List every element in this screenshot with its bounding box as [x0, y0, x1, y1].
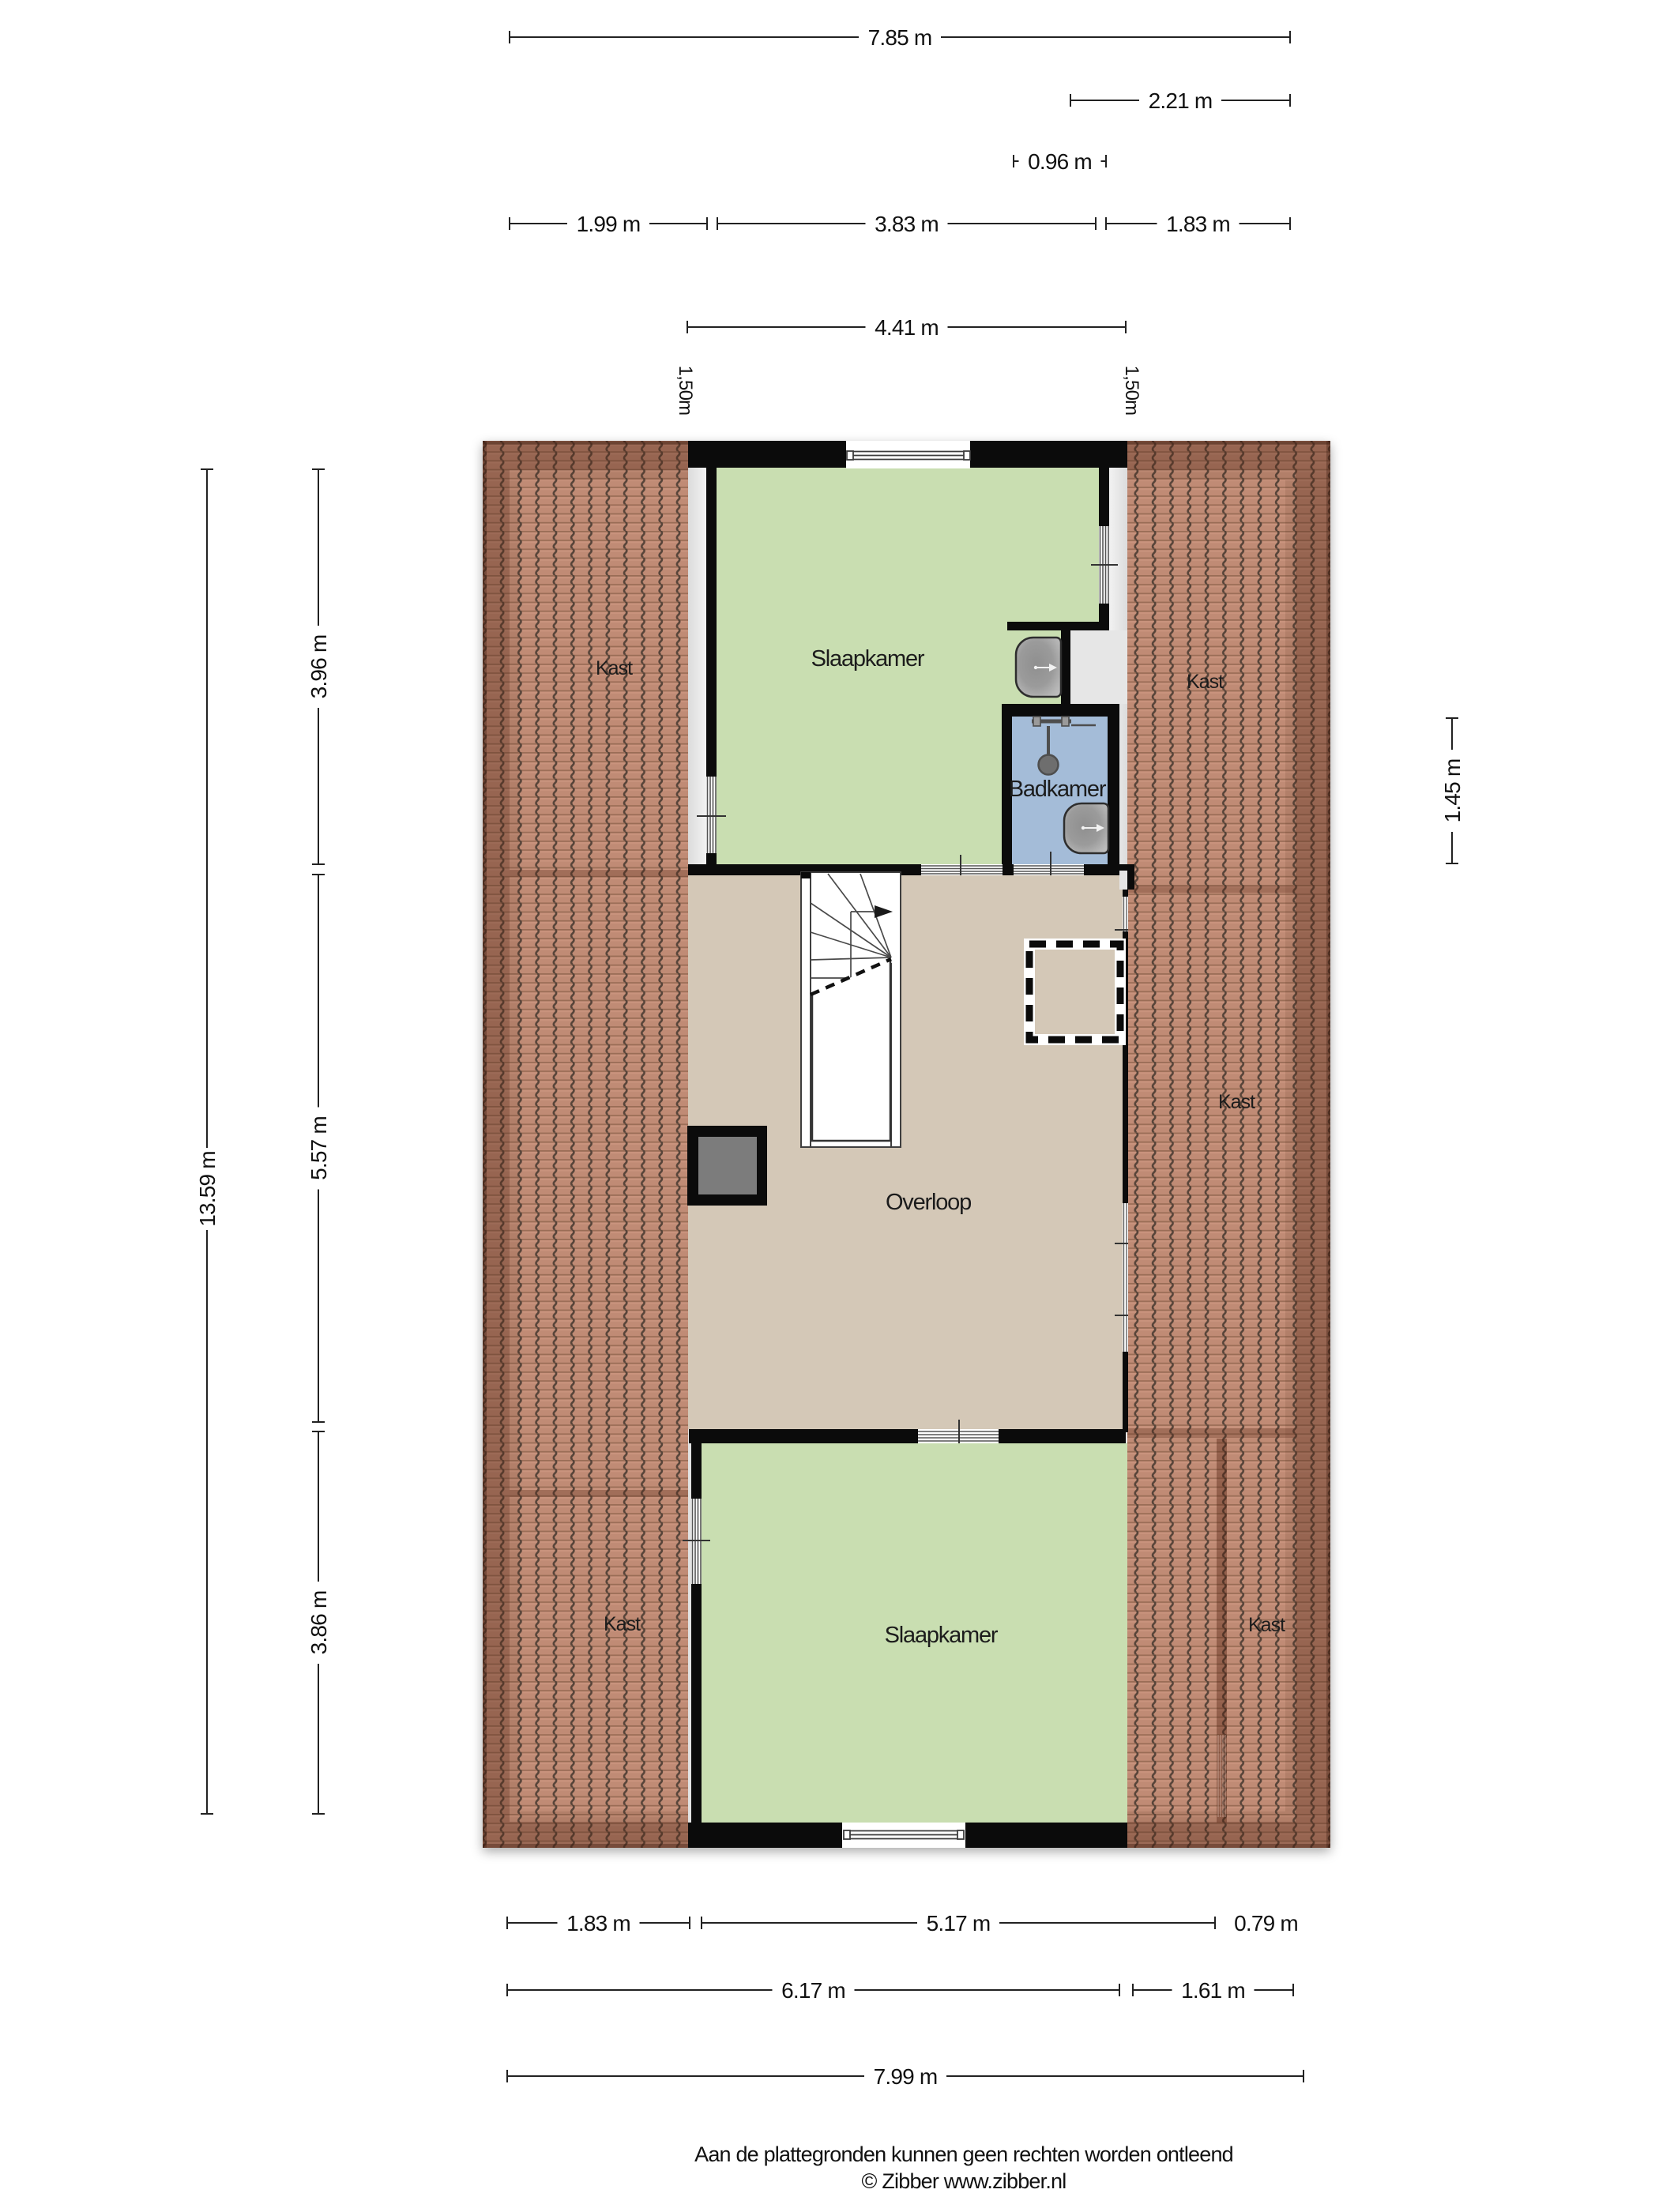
- svg-text:Kast: Kast: [604, 1613, 641, 1635]
- svg-text:7.99 m: 7.99 m: [874, 2064, 938, 2089]
- svg-text:1.99 m: 1.99 m: [577, 212, 641, 236]
- svg-text:Aan de plattegronden kunnen ge: Aan de plattegronden kunnen geen rechten…: [694, 2142, 1233, 2166]
- svg-text:1,50m: 1,50m: [1121, 366, 1142, 416]
- svg-text:Kast: Kast: [1218, 1091, 1255, 1113]
- svg-text:5.17 m: 5.17 m: [927, 1911, 991, 1935]
- svg-text:© Zibber www.zibber.nl: © Zibber www.zibber.nl: [862, 2169, 1066, 2193]
- svg-text:0.96 m: 0.96 m: [1028, 149, 1092, 174]
- svg-text:0.79 m: 0.79 m: [1234, 1911, 1298, 1935]
- svg-text:Overloop: Overloop: [886, 1190, 971, 1215]
- svg-text:2.21 m: 2.21 m: [1149, 88, 1213, 113]
- svg-text:Slaapkamer: Slaapkamer: [885, 1623, 999, 1648]
- svg-text:1.83 m: 1.83 m: [566, 1911, 630, 1935]
- svg-text:Badkamer: Badkamer: [1009, 777, 1107, 802]
- svg-text:1.45 m: 1.45 m: [1440, 759, 1465, 823]
- svg-text:Kast: Kast: [1187, 671, 1224, 693]
- svg-text:6.17 m: 6.17 m: [781, 1978, 845, 2003]
- svg-text:1,50m: 1,50m: [675, 366, 696, 416]
- svg-text:3.83 m: 3.83 m: [875, 212, 939, 236]
- svg-text:4.41 m: 4.41 m: [875, 315, 939, 340]
- svg-text:Kast: Kast: [596, 657, 633, 679]
- svg-text:Slaapkamer: Slaapkamer: [811, 646, 925, 671]
- svg-text:13.59 m: 13.59 m: [195, 1151, 220, 1227]
- svg-text:Kast: Kast: [1248, 1614, 1285, 1636]
- svg-text:7.85 m: 7.85 m: [868, 25, 932, 50]
- svg-text:1.83 m: 1.83 m: [1166, 212, 1230, 236]
- svg-text:5.57 m: 5.57 m: [307, 1116, 331, 1180]
- svg-text:3.96 m: 3.96 m: [307, 635, 331, 699]
- svg-text:1.61 m: 1.61 m: [1181, 1978, 1245, 2003]
- svg-text:3.86 m: 3.86 m: [307, 1591, 331, 1655]
